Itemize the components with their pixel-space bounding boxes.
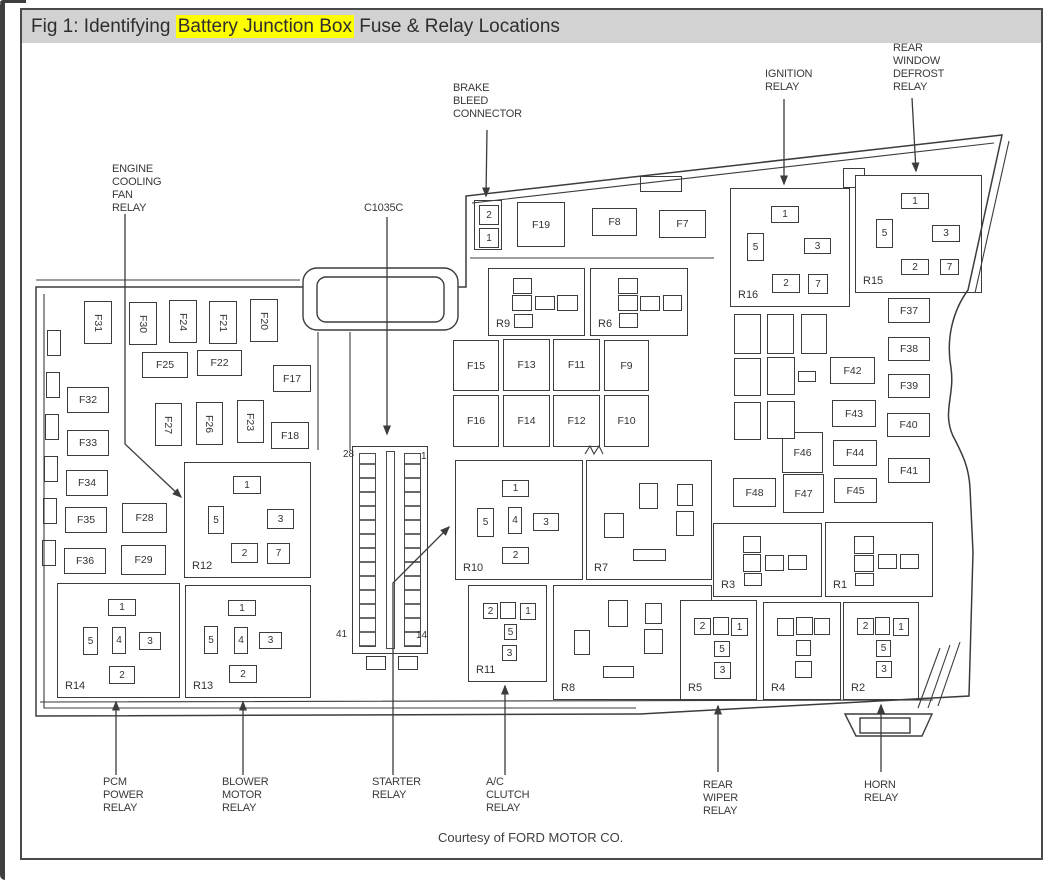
relay-pin-4: 4: [508, 507, 522, 534]
fuse-f24: F24: [169, 300, 197, 343]
fuse-f17: F17: [273, 365, 311, 392]
relay-pin: [618, 295, 638, 311]
fuse-f36: F36: [64, 548, 106, 574]
fuse-f45: F45: [834, 478, 877, 503]
relay-r5: R52153: [680, 600, 757, 700]
relay-pin: [777, 618, 794, 636]
relay-pin-1: 1: [520, 603, 536, 620]
relay-pin-1: 1: [479, 228, 499, 248]
relay-r10: R1015432: [455, 460, 583, 580]
fuse-f15: F15: [453, 340, 499, 391]
fuse-f10: F10: [604, 395, 649, 447]
relay-pin-5: 5: [876, 219, 893, 248]
connector-c1035c: [352, 446, 428, 654]
relay-pin-1: 1: [502, 480, 529, 497]
relay-id-label: R6: [598, 318, 612, 330]
relay-pin-2: 2: [479, 205, 499, 225]
fuse-f11: F11: [553, 339, 600, 391]
relay-id-label: R2: [851, 682, 865, 694]
blank-box: [44, 456, 58, 482]
relay-pin-5: 5: [83, 627, 98, 655]
fuse-f23: F23: [237, 400, 264, 443]
fuse-f21: F21: [209, 301, 237, 344]
relay-pin: [676, 511, 694, 536]
relay-r1: R1: [825, 522, 933, 597]
relay-pin-7: 7: [267, 543, 290, 564]
fuse-f43: F43: [832, 400, 876, 427]
screenshot-canvas: Fig 1: Identifying Battery Junction Box …: [0, 0, 1060, 880]
relay-pin: [644, 629, 663, 654]
relay-pin: [608, 600, 628, 627]
fuse-f8: F8: [592, 208, 637, 236]
relay-pin: [814, 618, 830, 635]
relay-pin-1: 1: [893, 618, 909, 636]
relay-pin-7: 7: [808, 274, 828, 294]
relay-pin: [512, 295, 532, 311]
fuse-f16: F16: [453, 395, 499, 447]
fuse-f35: F35: [65, 507, 107, 533]
relay-pin-4: 4: [112, 627, 126, 654]
relay-pin: [713, 617, 729, 635]
fuse-f9: F9: [604, 340, 649, 391]
fuse-f12: F12: [553, 395, 600, 447]
relay-pin: [639, 483, 658, 509]
relay-pin-5: 5: [477, 508, 494, 537]
fuse-f48: F48: [733, 478, 776, 507]
callout-starter-relay: STARTERRELAY: [372, 776, 421, 802]
blank-box: [801, 314, 827, 354]
relay-r2: R22153: [843, 602, 919, 700]
callout-brake-bleed-connector: BRAKEBLEEDCONNECTOR: [453, 82, 522, 121]
relay-r3: R3: [713, 523, 822, 597]
relay-pin: [663, 295, 682, 311]
relay-pin-1: 1: [901, 193, 929, 209]
relay-pin: [557, 295, 578, 311]
blank-box: [46, 372, 60, 398]
relay-pin: [604, 513, 624, 538]
relay-r7: R7: [586, 460, 712, 580]
relay-r12: R1215327: [184, 462, 311, 578]
relay-pin-5: 5: [504, 624, 517, 640]
connector-center-rail: [386, 451, 395, 649]
relay-pin-3: 3: [714, 662, 731, 679]
relay-pin-2: 2: [901, 259, 929, 275]
relay-pin: [619, 313, 638, 328]
fuse-f41: F41: [888, 458, 930, 483]
blank-box: [398, 656, 418, 670]
relay-pin: [765, 555, 784, 571]
callout-ac-clutch-relay: A/CCLUTCHRELAY: [486, 776, 529, 815]
fuse-f13: F13: [503, 339, 550, 391]
callout-horn-relay: HORNRELAY: [864, 779, 898, 805]
relay-pin-3: 3: [139, 632, 161, 650]
callout-rear-window-defrost-relay: REARWINDOWDEFROSTRELAY: [893, 42, 944, 94]
relay-r9: R9: [488, 268, 585, 336]
relay-pin-1: 1: [228, 600, 256, 616]
relay-pin-2: 2: [483, 603, 498, 619]
relay-pin: [513, 278, 532, 294]
relay-pin-2: 2: [502, 547, 529, 564]
relay-id-label: R16: [738, 289, 758, 301]
relay-id-label: R7: [594, 562, 608, 574]
blank-box: [640, 176, 682, 192]
relay-pin: [854, 555, 874, 572]
blank-box: [767, 401, 795, 439]
callout-engine-cooling-fan-relay: ENGINECOOLINGFANRELAY: [112, 163, 161, 215]
relay-pin-1: 1: [771, 206, 799, 223]
fuse-f33: F33: [67, 430, 109, 456]
fuse-f14: F14: [503, 395, 550, 447]
relay-pin: [875, 617, 890, 635]
blank-box: [47, 330, 61, 356]
relay-pin: [855, 573, 874, 586]
relay-id-label: R9: [496, 318, 510, 330]
relay-pin: [795, 661, 812, 678]
blank-box: [734, 314, 761, 354]
relay-pin: [878, 554, 897, 569]
blank-box: [45, 414, 59, 440]
connector-pin-row-left: [359, 453, 376, 647]
relay-id-label: R10: [463, 562, 483, 574]
relay-pin-4: 4: [234, 627, 248, 654]
relay-pin: [640, 296, 660, 311]
connector-pin-row-right: [404, 453, 421, 647]
relay-pin-5: 5: [204, 626, 218, 654]
fuse-f32: F32: [67, 387, 109, 413]
connector-pin-number: 28: [343, 449, 354, 460]
relay-pin-1: 1: [731, 618, 748, 636]
relay-pin-3: 3: [932, 225, 960, 242]
relay-pin-3: 3: [502, 645, 517, 661]
relay-id-label: R13: [193, 680, 213, 692]
relay-id-label: R1: [833, 579, 847, 591]
relay-pin-5: 5: [747, 233, 764, 261]
relay-pin: [618, 278, 638, 294]
relay-pin-5: 5: [714, 641, 730, 657]
relay-pin-1: 1: [108, 599, 136, 616]
blank-box: [734, 358, 761, 396]
relay-pin-2: 2: [109, 666, 135, 684]
courtesy-note: Courtesy of FORD MOTOR CO.: [438, 830, 623, 845]
relay-pin-2: 2: [857, 618, 874, 635]
relay-pin-5: 5: [208, 506, 224, 534]
relay-r4: R4: [763, 602, 841, 700]
relay-id-label: R5: [688, 682, 702, 694]
relay-pin-7: 7: [940, 259, 959, 275]
fuse-f47: F47: [783, 474, 824, 513]
relay-pin-3: 3: [259, 632, 282, 649]
relay-pin-2: 2: [231, 543, 258, 563]
fuse-f44: F44: [833, 440, 877, 466]
fuse-f7: F7: [659, 210, 706, 238]
fuse-box-diagram: F31F30F24F21F20F25F22F17F18F27F26F23F32F…: [0, 0, 1060, 880]
blank-box: [43, 498, 57, 524]
fuse-f34: F34: [66, 470, 108, 496]
fuse-f18: F18: [271, 422, 309, 449]
relay-pin: [743, 536, 761, 553]
relay-pin-2: 2: [772, 274, 800, 293]
callout-ignition-relay: IGNITIONRELAY: [765, 68, 812, 94]
blank-box: [798, 371, 816, 382]
relay-pin: [854, 536, 874, 554]
relay-pin-1: 1: [233, 476, 261, 494]
blank-box: [767, 314, 794, 354]
callout-blower-motor-relay: BLOWERMOTORRELAY: [222, 776, 268, 815]
connector-pin-number: 14: [416, 630, 427, 641]
fuse-f19: F19: [517, 202, 565, 247]
fuse-f39: F39: [888, 374, 930, 398]
blank-box: [366, 656, 386, 670]
callout-rear-wiper-relay: REARWIPERRELAY: [703, 779, 738, 818]
relay-r11: R112153: [468, 585, 547, 682]
relay-pin: [743, 554, 761, 572]
fuse-f28: F28: [122, 503, 167, 533]
fuse-f29: F29: [121, 545, 166, 575]
fuse-f20: F20: [250, 299, 278, 342]
relay-pin-2: 2: [694, 618, 711, 635]
fuse-f40: F40: [887, 413, 930, 437]
relay-pin: [796, 640, 811, 656]
blank-box: [42, 540, 56, 566]
relay-pin: [677, 484, 693, 506]
callout-c1035c: C1035C: [364, 202, 403, 215]
relay-pin-3: 3: [804, 238, 831, 254]
blank-box: [767, 357, 795, 395]
fuse-f25: F25: [142, 352, 188, 378]
relay-r13: R1315432: [185, 585, 311, 698]
relay-pin: [514, 314, 533, 328]
relay-pin: [574, 630, 590, 655]
relay-pin-3: 3: [533, 513, 559, 531]
connector-pin-number: 41: [336, 629, 347, 640]
relay-pin: [900, 554, 919, 569]
relay-pin: [603, 666, 634, 678]
relay-pin: [500, 602, 516, 619]
connector-pin-number: 1: [421, 451, 427, 462]
relay-id-label: R4: [771, 682, 785, 694]
relay-pin-3: 3: [876, 661, 892, 678]
brake-bleed-connector-block: 21: [474, 200, 502, 250]
relay-pin: [788, 555, 807, 570]
fuse-f38: F38: [888, 337, 930, 361]
fuse-f26: F26: [196, 402, 223, 445]
fuse-f30: F30: [129, 302, 157, 345]
fuse-f22: F22: [197, 350, 242, 376]
relay-id-label: R3: [721, 579, 735, 591]
relay-pin-5: 5: [876, 640, 891, 657]
relay-r15: R1515327: [855, 175, 982, 293]
blank-box: [734, 402, 761, 440]
relay-id-label: R8: [561, 682, 575, 694]
fuse-f27: F27: [155, 403, 182, 446]
relay-id-label: R14: [65, 680, 85, 692]
fuse-f37: F37: [888, 298, 930, 323]
relay-id-label: R15: [863, 275, 883, 287]
relay-pin: [535, 296, 555, 310]
relay-pin-2: 2: [229, 665, 257, 683]
relay-r6: R6: [590, 268, 688, 336]
relay-id-label: R12: [192, 560, 212, 572]
relay-pin: [744, 573, 762, 586]
relay-pin-3: 3: [267, 509, 294, 529]
fuse-f31: F31: [84, 301, 112, 344]
relay-pin: [645, 603, 662, 624]
fuse-f42: F42: [830, 357, 875, 384]
relay-r16: R1615327: [730, 188, 850, 307]
callout-pcm-power-relay: PCMPOWERRELAY: [103, 776, 144, 815]
relay-r14: R1415432: [57, 583, 180, 698]
relay-pin: [633, 549, 666, 561]
relay-pin: [796, 617, 813, 635]
relay-id-label: R11: [476, 664, 495, 676]
